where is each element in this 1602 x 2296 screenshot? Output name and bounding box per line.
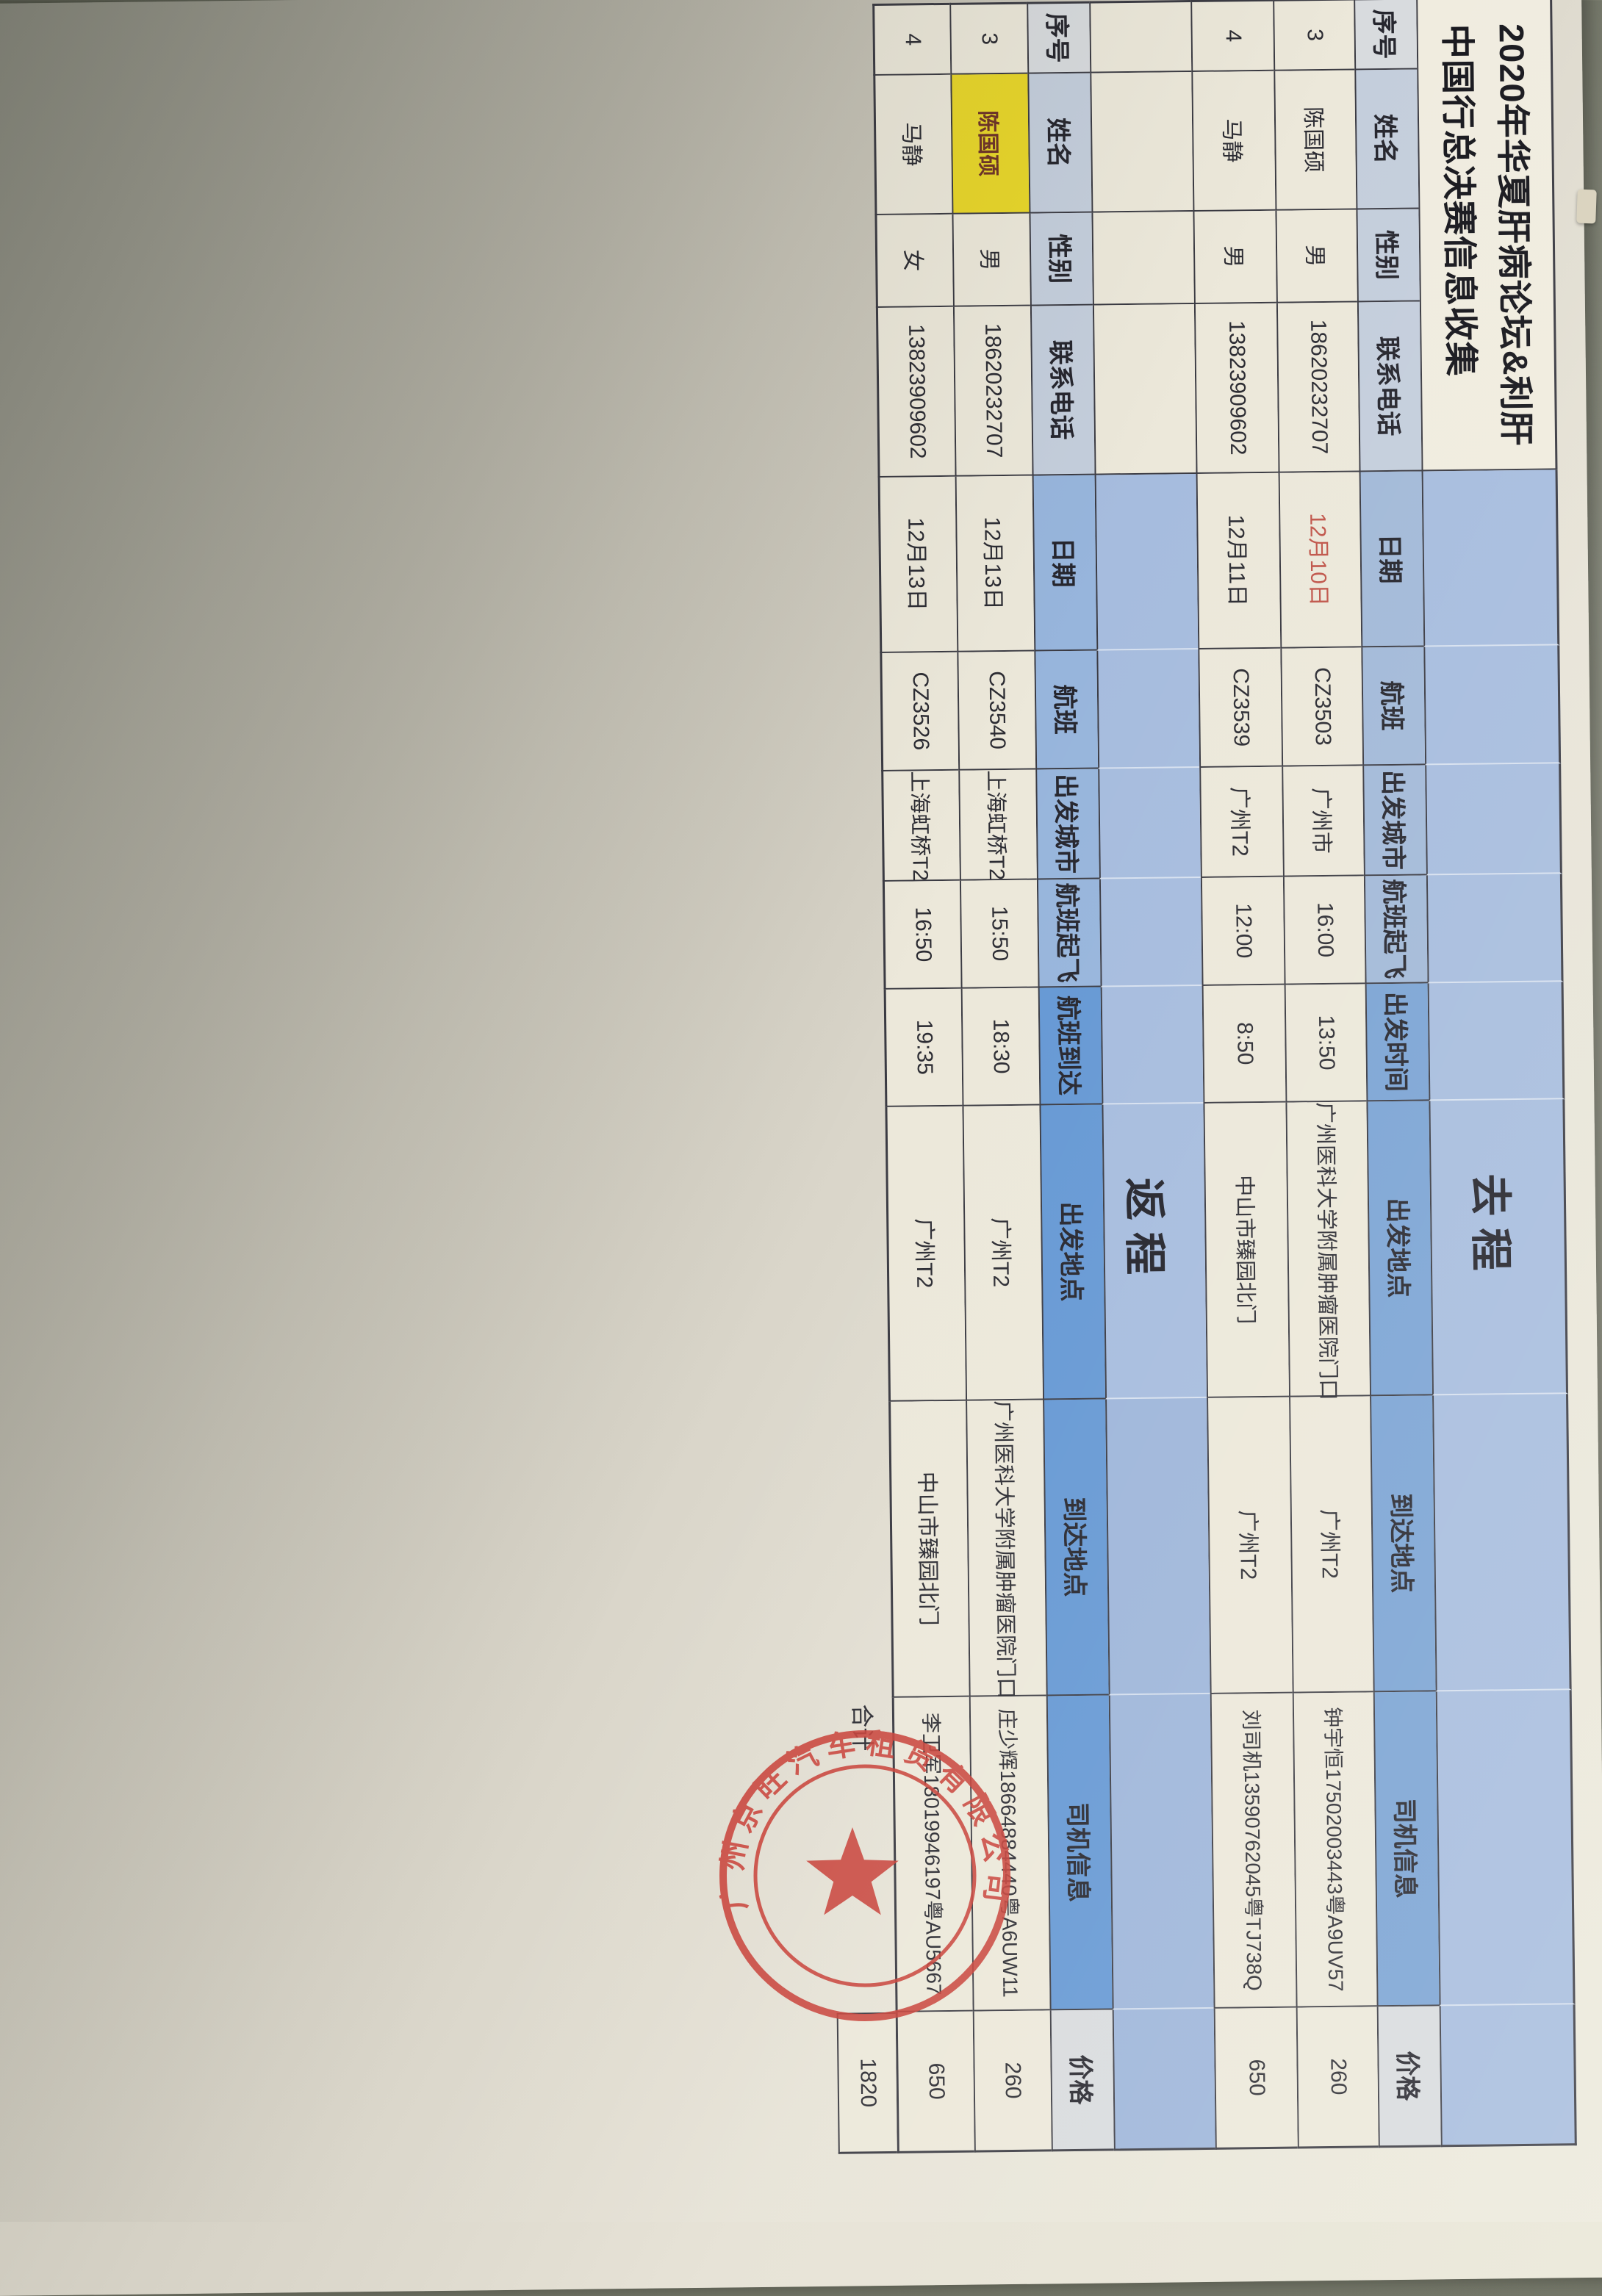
cell-num: 3	[1273, 0, 1354, 71]
return-band	[1095, 474, 1199, 651]
title-row: 2020年华夏肝病论坛&利肝 中国行总决赛信息收集	[1416, 0, 1577, 2147]
cell-from: 广州T2	[962, 1106, 1043, 1401]
header-driver: 司机信息	[1373, 1691, 1440, 2007]
cell-takeoff: 16:50	[883, 881, 961, 990]
cell-city: 广州T2	[1199, 767, 1283, 878]
cell-num: 3	[949, 2, 1027, 75]
cell-gender: 男	[1275, 209, 1357, 303]
header-from: 出发地点	[1366, 1101, 1432, 1396]
header-depart-time: 出发时间	[1365, 983, 1429, 1101]
cell-price: 260	[1296, 2007, 1379, 2148]
cell-date: 12月11日	[1196, 473, 1281, 649]
header-city: 出发城市	[1035, 769, 1099, 880]
header-flight: 航班	[1361, 647, 1425, 766]
header-city: 出发城市	[1362, 765, 1426, 876]
cell-city: 上海虹桥T2	[958, 770, 1037, 881]
cell-takeoff: 12:00	[1201, 877, 1285, 986]
outbound-section-label: 去程	[1463, 1173, 1526, 1283]
header-takeoff: 航班起飞	[1037, 879, 1101, 988]
cell-driver: 刘司机13590762045粤TJ738Q	[1210, 1694, 1296, 2009]
cell-gender: 女	[874, 215, 952, 308]
header-num: 序号	[1027, 1, 1090, 74]
header-num: 序号	[1354, 0, 1417, 70]
return-section-label: 返程	[1117, 1177, 1180, 1286]
cell-arrive-time: 18:30	[961, 988, 1040, 1106]
cell-arrive-time: 19:35	[884, 989, 963, 1107]
cell-to: 广州T2	[1289, 1396, 1373, 1693]
header-phone: 联系电话	[1357, 301, 1422, 472]
cell-flight: CZ3540	[957, 652, 1035, 771]
cell-name-highlighted: 陈国硕	[950, 74, 1029, 215]
cell-from: 广州医科大学附属肿瘤医院门口	[1285, 1101, 1370, 1397]
header-phone: 联系电话	[1030, 306, 1095, 476]
cell-phone: 18620232707	[953, 306, 1032, 477]
title-band	[1422, 469, 1560, 647]
cell-price: 260	[973, 2010, 1052, 2152]
cell-price: 650	[1214, 2008, 1298, 2150]
cell-num: 4	[1190, 0, 1274, 72]
company-stamp: 广州京旺汽车租赁有限公司	[711, 1721, 1019, 2030]
total-value-cell: 1820	[837, 2012, 897, 2154]
cell-city: 广州市	[1282, 766, 1364, 877]
title-cell: 2020年华夏肝病论坛&利肝 中国行总决赛信息收集	[1416, 0, 1557, 471]
cell-phone: 18620232707	[1276, 302, 1359, 472]
cell-name: 马静	[873, 75, 952, 215]
header-arrive-time: 航班到达	[1038, 987, 1102, 1106]
cell-driver: 钟宇恒17502003443粤A9UV57	[1293, 1692, 1377, 2007]
header-gender: 性别	[1356, 209, 1419, 302]
document-photo: { "document": { "title_line1": "2020年华夏肝…	[0, 0, 1602, 2222]
cell-to: 广州医科大学附属肿瘤医院门口	[966, 1400, 1046, 1696]
cell-takeoff: 15:50	[960, 880, 1038, 989]
cell-phone: 13823909602	[876, 307, 955, 478]
cell-num: 4	[872, 3, 950, 76]
cell-phone: 13823909602	[1194, 303, 1279, 474]
cell-from: 中山市臻园北门	[1203, 1103, 1289, 1398]
cell-to: 中山市臻园北门	[888, 1401, 969, 1698]
cell-gender: 男	[1193, 211, 1276, 304]
header-from: 出发地点	[1039, 1105, 1105, 1400]
header-driver: 司机信息	[1046, 1695, 1113, 2010]
header-date: 日期	[1359, 471, 1424, 647]
title-line-2: 中国行总决赛信息收集	[1430, 24, 1490, 469]
cell-to: 广州T2	[1207, 1397, 1293, 1694]
cell-date: 12月10日	[1279, 472, 1362, 648]
header-name: 姓名	[1027, 73, 1091, 214]
header-flight: 航班	[1034, 651, 1098, 770]
header-takeoff: 航班起飞	[1364, 875, 1428, 984]
cell-depart-time: 13:50	[1285, 984, 1367, 1102]
cell-city: 上海虹桥T2	[881, 771, 960, 882]
cell-flight: CZ3503	[1280, 647, 1362, 766]
header-to: 到达地点	[1370, 1395, 1436, 1692]
binder-clip	[1576, 190, 1597, 224]
cell-name: 陈国硕	[1274, 70, 1356, 210]
header-name: 姓名	[1354, 69, 1418, 209]
cell-gender: 男	[952, 214, 1030, 307]
title-line-1: 2020年华夏肝病论坛&利肝	[1484, 24, 1544, 469]
cell-flight: CZ3539	[1198, 649, 1282, 768]
cell-takeoff: 16:00	[1283, 876, 1365, 985]
stamp-star	[806, 1827, 899, 1915]
header-to: 到达地点	[1043, 1400, 1109, 1696]
cell-date: 12月13日	[955, 476, 1035, 652]
header-price: 价格	[1050, 2009, 1114, 2151]
header-price: 价格	[1377, 2006, 1441, 2148]
header-gender: 性别	[1029, 213, 1092, 306]
cell-name: 马静	[1191, 71, 1275, 212]
cell-date: 12月13日	[878, 477, 958, 653]
cell-from: 广州T2	[885, 1106, 966, 1402]
cell-flight: CZ3526	[880, 652, 958, 771]
cell-price: 650	[896, 2012, 974, 2153]
cell-depart-time: 8:50	[1202, 985, 1286, 1104]
header-date: 日期	[1032, 475, 1097, 652]
